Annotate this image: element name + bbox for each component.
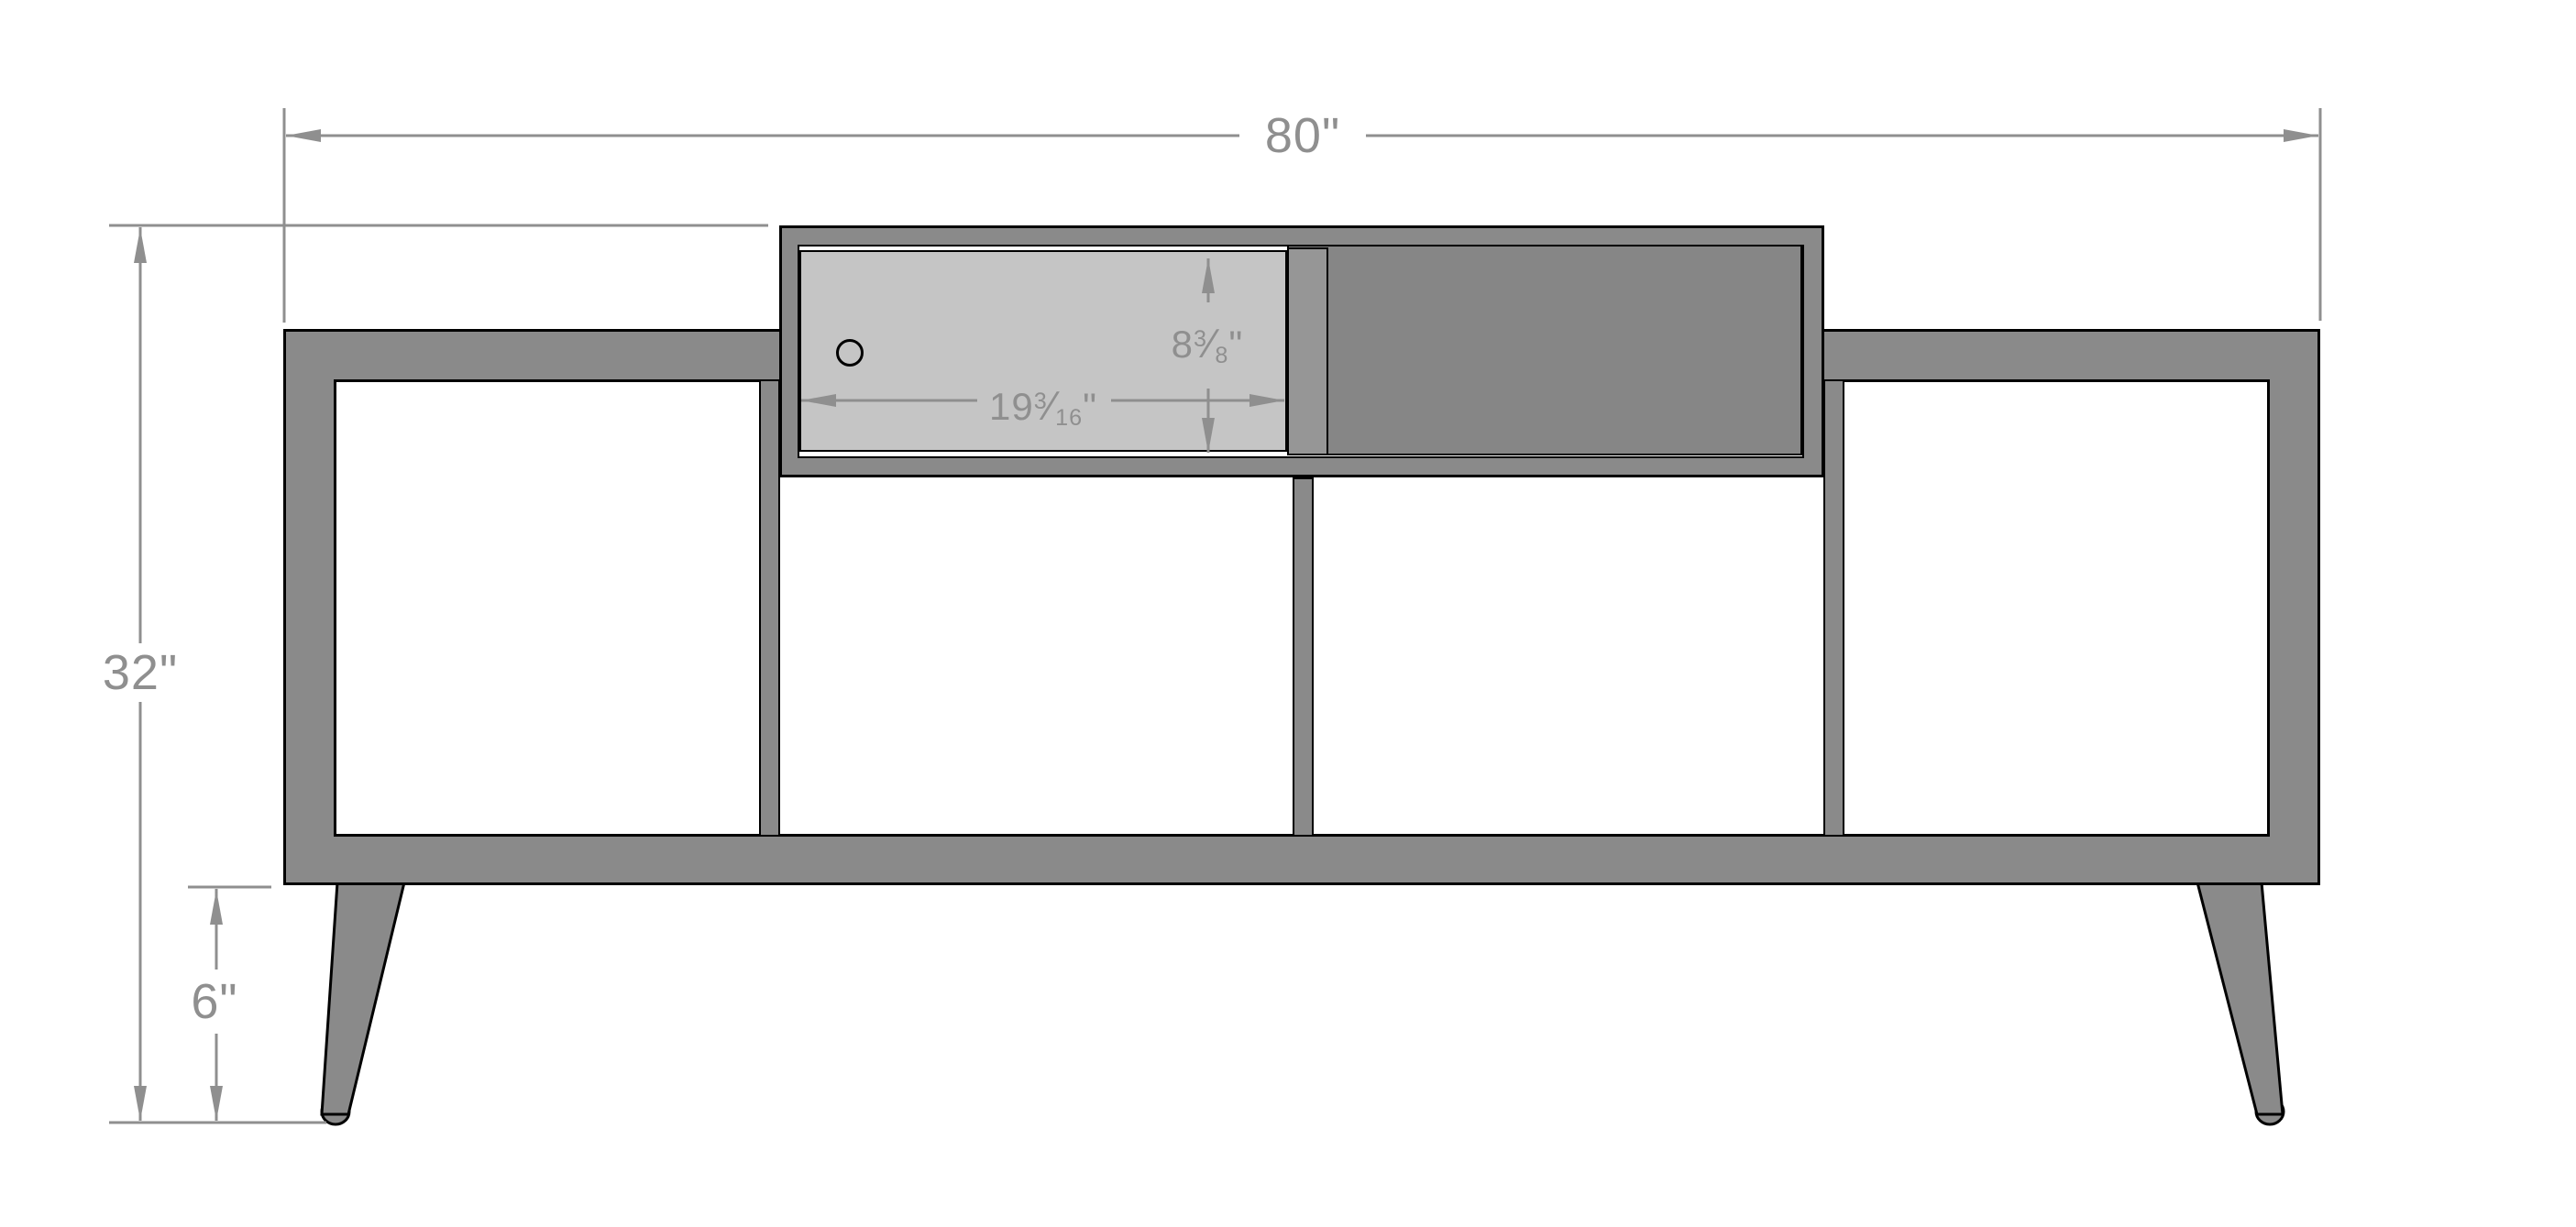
dimension-label-overall-height: 32" [103, 648, 178, 697]
door-width-numerator: 3 [1034, 389, 1048, 414]
door-width-denominator: 16 [1055, 404, 1083, 430]
technical-drawing: 80" 32" 6" 193⁄16" 83⁄8" [0, 0, 2576, 1227]
arrowhead-down [210, 1086, 223, 1121]
arrowhead-down [1202, 418, 1215, 453]
arrowhead-up [134, 228, 147, 263]
door-height-unit: " [1228, 323, 1243, 366]
door-height-denominator: 8 [1215, 342, 1228, 367]
arrowhead-up [1202, 258, 1215, 293]
fraction-slash: ⁄ [1207, 322, 1215, 367]
fraction-slash: ⁄ [1048, 384, 1055, 429]
dimension-label-overall-width: 80" [1265, 111, 1340, 160]
arrowhead-left [286, 129, 321, 142]
dimension-label-leg-height: 6" [191, 977, 237, 1026]
door-height-numerator: 3 [1194, 326, 1207, 352]
dimension-label-door-width: 193⁄16" [989, 387, 1097, 427]
door-width-whole: 19 [989, 385, 1034, 428]
door-width-unit: " [1083, 385, 1097, 428]
arrowhead-left [801, 394, 836, 407]
arrowhead-up [210, 890, 223, 925]
arrowhead-right [2284, 129, 2318, 142]
arrowhead-down [134, 1086, 147, 1121]
arrowhead-right [1249, 394, 1284, 407]
dimensions-layer [0, 0, 2576, 1227]
dimension-label-door-height: 83⁄8" [1172, 324, 1244, 365]
door-height-whole: 8 [1172, 323, 1194, 366]
